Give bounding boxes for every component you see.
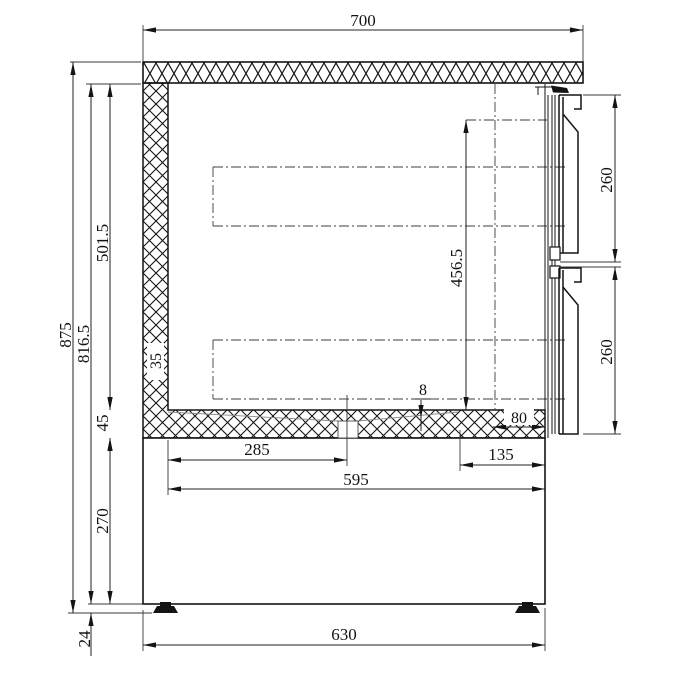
dim-label-wall-thickness: 35: [148, 353, 165, 369]
technical-drawing: 700 875 816.5 501.5 35 45 270 24 456.5 2…: [0, 0, 700, 700]
dim-label-interior-depth: 595: [343, 470, 369, 489]
dim-label-overall-height: 875: [56, 322, 75, 348]
dim-label-body-height: 816.5: [74, 325, 93, 363]
gasket-seal: [551, 86, 569, 94]
upper-drawer-front: [559, 95, 581, 253]
drawer-rails: [545, 84, 555, 438]
lower-drawer-front: [559, 268, 581, 434]
drain-outlet: [338, 421, 358, 438]
lower-drawer-box-outline: [213, 340, 568, 399]
top-hinge-bracket: [535, 86, 569, 96]
dim-label-front-step-depth: 135: [488, 445, 514, 464]
dim-label-base-depth: 630: [331, 625, 357, 644]
worktop-slab: [143, 62, 583, 83]
plinth-body: [143, 438, 545, 604]
dim-label-top-width: 700: [350, 11, 376, 30]
technical-drawing-canvas: 700 875 816.5 501.5 35 45 270 24 456.5 2…: [0, 0, 700, 700]
dim-label-drawer-opening-height: 456.5: [447, 249, 466, 287]
upper-drawer-box-outline: [213, 167, 568, 226]
dim-label-upper-drawer-front: 260: [597, 167, 616, 193]
dim-label-lower-drawer-front: 260: [597, 339, 616, 365]
dim-label-drain-offset: 285: [244, 440, 270, 459]
insulated-wall-and-floor: [143, 83, 545, 438]
dim-label-floor-thickness: 45: [93, 415, 112, 432]
dim-label-rear-floor-depth: 80: [511, 410, 527, 427]
dim-label-interior-height: 501.5: [93, 224, 112, 262]
dim-label-floor-fall: 8: [419, 382, 427, 399]
hidden-lines: [213, 84, 568, 410]
dim-label-plinth-height: 270: [93, 508, 112, 534]
dim-label-foot-height: 24: [75, 630, 94, 648]
